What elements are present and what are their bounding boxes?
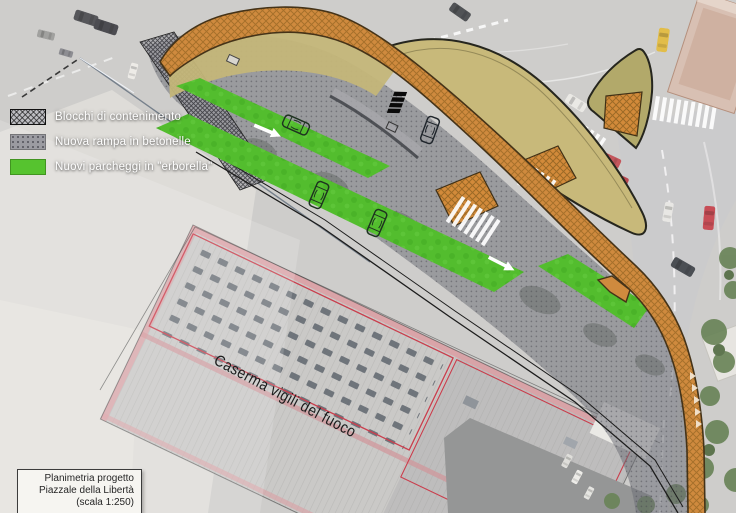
legend-label: Nuova rampa in betonelle	[55, 136, 191, 148]
legend-label: Blocchi di contenimento	[55, 111, 181, 123]
stipple-swatch-icon	[10, 134, 46, 150]
aerial-plan-graphic	[0, 0, 736, 513]
site-plan-canvas: Blocchi di contenimento Nuova rampa in b…	[0, 0, 736, 513]
green-swatch-icon	[10, 159, 46, 175]
title-line: Planimetria progetto	[22, 473, 134, 485]
legend-item-blocchi: Blocchi di contenimento	[10, 108, 212, 125]
legend-item-rampa: Nuova rampa in betonelle	[10, 133, 212, 150]
legend-item-parcheggi: Nuovi parcheggi in "erborella"	[10, 158, 212, 175]
title-line: (scala 1:250)	[22, 497, 134, 509]
legend-label: Nuovi parcheggi in "erborella"	[55, 161, 212, 173]
title-line: Piazzale della Libertà	[22, 485, 134, 497]
crosshatch-swatch-icon	[10, 109, 46, 125]
title-box: Planimetria progetto Piazzale della Libe…	[17, 469, 142, 513]
legend: Blocchi di contenimento Nuova rampa in b…	[10, 108, 212, 175]
